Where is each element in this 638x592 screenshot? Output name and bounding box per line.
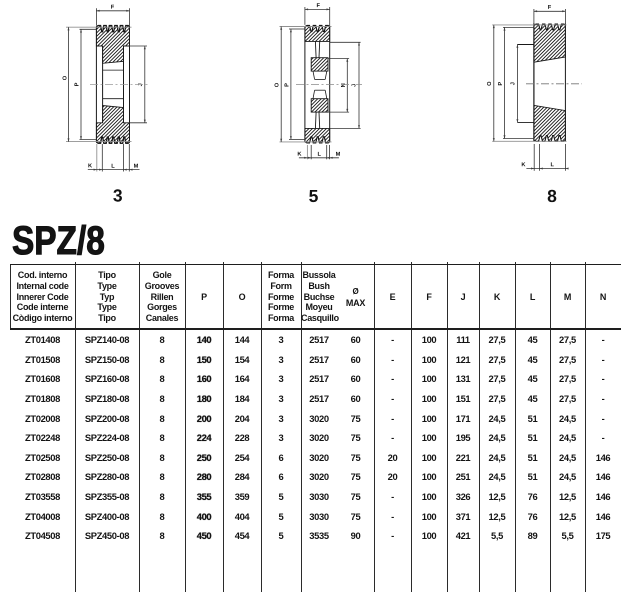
svg-text:F: F <box>111 5 115 11</box>
svg-text:5: 5 <box>309 186 319 206</box>
svg-text:L: L <box>550 162 554 168</box>
svg-text:P: P <box>75 82 81 86</box>
svg-text:K: K <box>521 162 526 168</box>
svg-text:J: J <box>510 82 516 85</box>
svg-text:O: O <box>62 75 68 80</box>
svg-text:N: N <box>341 83 347 87</box>
svg-text:P: P <box>284 83 290 87</box>
svg-text:M: M <box>336 152 341 158</box>
svg-text:L: L <box>111 164 115 170</box>
svg-text:F: F <box>548 5 552 11</box>
svg-text:K: K <box>88 163 93 169</box>
svg-text:3: 3 <box>113 185 123 205</box>
svg-text:O: O <box>487 81 493 86</box>
svg-text:K: K <box>297 152 302 158</box>
svg-text:O: O <box>274 82 280 87</box>
svg-text:M: M <box>134 164 139 170</box>
svg-text:F: F <box>316 3 320 9</box>
svg-text:P: P <box>498 82 504 86</box>
svg-text:8: 8 <box>547 186 557 206</box>
svg-text:L: L <box>317 152 321 158</box>
